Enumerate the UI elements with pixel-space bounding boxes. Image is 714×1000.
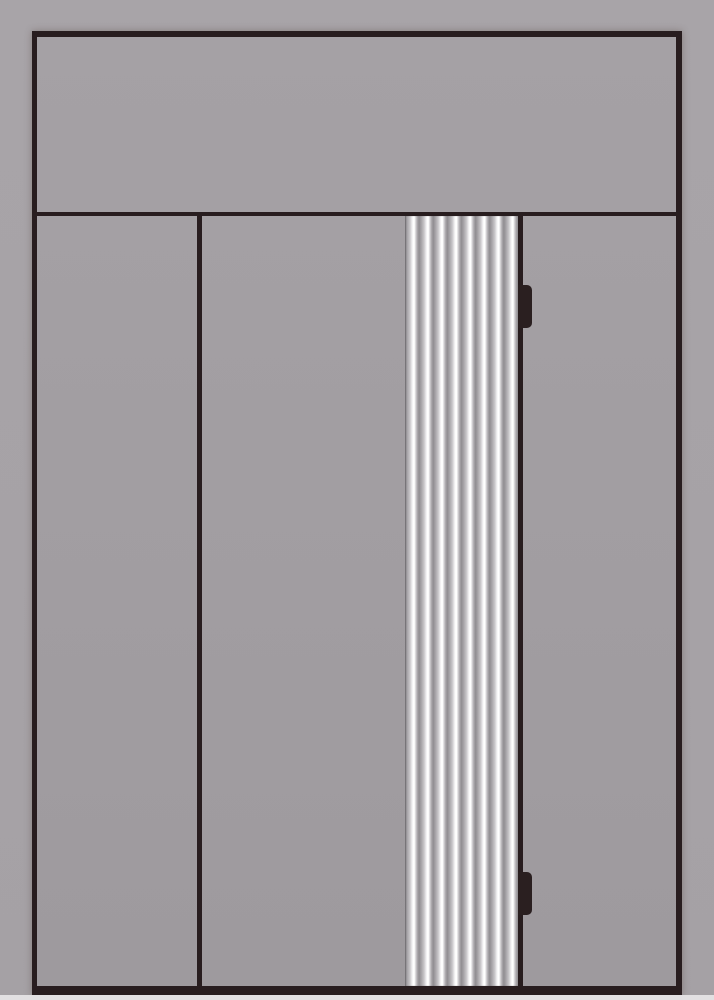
left-sidelite-panel [37, 216, 197, 986]
right-mullion-line [518, 216, 523, 986]
top-hinge [518, 285, 532, 328]
fluted-pillar-strip [405, 216, 518, 986]
bottom-floor-strip [0, 995, 714, 1000]
bottom-hinge [518, 872, 532, 915]
door-frame [32, 31, 682, 996]
transom-panel [37, 37, 676, 212]
door-elevation-canvas [0, 0, 714, 1000]
